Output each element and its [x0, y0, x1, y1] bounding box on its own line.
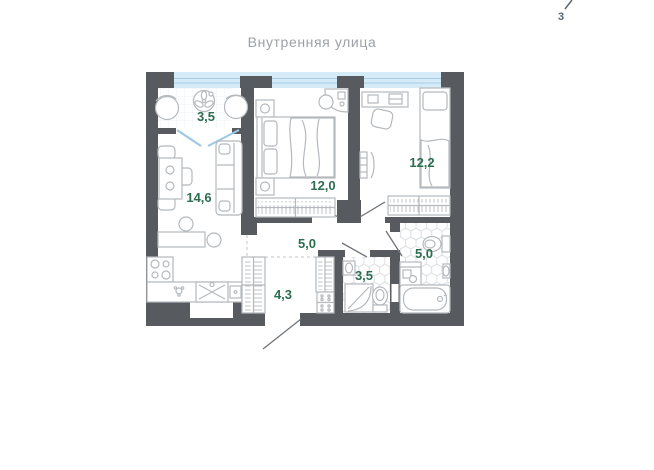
armchair-icon [156, 95, 179, 119]
desk-icon [362, 92, 408, 107]
wardrobe-icon [242, 257, 265, 313]
double-bed-icon [257, 117, 335, 178]
area-label-bathroom-small: 3,5 [355, 268, 373, 283]
armchair-icon [225, 95, 248, 118]
single-bed-icon [420, 88, 450, 188]
area-label-living-kitchen: 14,6 [186, 190, 211, 205]
toilet-icon [373, 287, 388, 312]
sink-icon [443, 264, 450, 278]
entrance-door [263, 319, 301, 349]
area-label-bathroom-large: 5,0 [415, 246, 433, 261]
bathtub-icon [400, 285, 450, 313]
area-label-bedroom-2: 12,2 [409, 155, 434, 170]
bedroom-2-door [360, 202, 385, 217]
wall-niche [190, 302, 233, 318]
shaft-niche [392, 284, 399, 302]
sink-icon [343, 261, 355, 275]
north-arrow-icon: 3 [558, 0, 572, 23]
area-label-bedroom-1: 12,0 [310, 178, 335, 193]
desk-chair-icon [370, 108, 393, 130]
north-label: 3 [558, 11, 564, 23]
shoe-cabinet-icon [317, 292, 334, 313]
street-label: Внутренняя улица [248, 34, 377, 50]
sofa-icon [216, 141, 242, 215]
window-band [174, 72, 441, 88]
floor-plan-page: Внутренняя улица 3 [0, 0, 654, 470]
shower-icon [345, 284, 373, 312]
kitchen-counter-icon [147, 282, 242, 302]
bathroom-small-door [342, 243, 367, 257]
nightstand-icon [256, 100, 274, 117]
wardrobe-icon [388, 196, 450, 215]
nightstand-icon [256, 178, 274, 195]
floor-plan: Внутренняя улица 3 [0, 0, 654, 470]
vanity-desk-icon [319, 89, 348, 112]
bar-counter-icon [158, 217, 221, 247]
wardrobe-icon [256, 198, 335, 217]
area-label-corridor: 5,0 [298, 236, 316, 251]
area-label-hallway: 4,3 [274, 287, 292, 302]
area-label-loggia: 3,5 [197, 109, 215, 124]
washing-machine-icon [400, 262, 421, 286]
stove-icon [147, 257, 173, 282]
wardrobe-icon [316, 257, 334, 292]
radiator-icon [360, 152, 374, 178]
